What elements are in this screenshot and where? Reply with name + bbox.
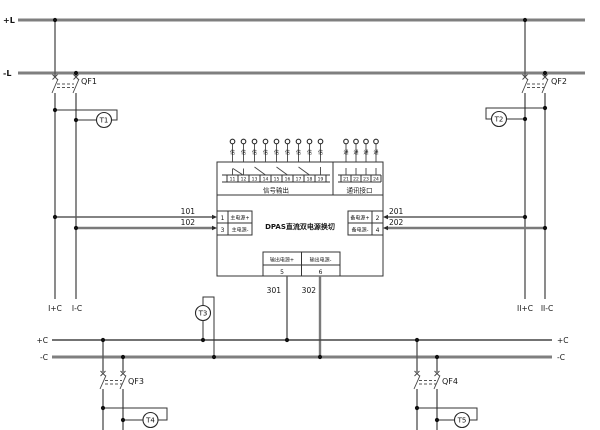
bus-minus-c-label-right: -C — [557, 353, 565, 362]
breaker-qf3-label: QF3 — [128, 377, 144, 386]
terminal-number: 15 — [274, 176, 280, 182]
monitor-t5-label: T5 — [457, 417, 467, 425]
comm-group-label: 通讯接口 — [347, 186, 373, 195]
terminal-number: 16 — [285, 176, 291, 182]
terminal-label: 输出电源- — [310, 257, 332, 264]
breaker-qf3: QF3 — [100, 371, 144, 389]
junction-dots — [53, 18, 547, 422]
bus-plus-l-label: +L — [3, 16, 15, 25]
pin-ring-icon — [344, 139, 349, 144]
comm-pin-stub — [346, 168, 376, 175]
feeder-ii-minus-c-label: II-C — [541, 304, 553, 313]
pin-ring-icon — [318, 139, 323, 144]
feeder-i-plus-c-label: I+C — [48, 304, 62, 313]
output-block: 输出电源+ 输出电源- 5 6 — [263, 252, 340, 276]
connector-pin-label: 通 — [373, 149, 378, 156]
pin-ring-icon — [230, 139, 235, 144]
arrowhead-icon — [383, 226, 388, 231]
comm-terminal-strip: 21 22 23 24 — [338, 168, 381, 182]
terminal-number: 13 — [252, 176, 258, 182]
feeder-1-poles: I+C I-C — [48, 20, 82, 313]
terminal-number: 22 — [353, 176, 359, 182]
arrowhead-icon — [212, 226, 217, 231]
relay-contact-icon — [233, 167, 321, 175]
bus-plus-c-label-left: +C — [36, 336, 48, 345]
terminal-number: 6 — [319, 269, 323, 276]
monitor-t3: T3 — [196, 297, 215, 357]
bus-plus-c-label-right: +C — [557, 336, 569, 345]
terminal-label: 备电源+ — [350, 215, 369, 222]
device-title: DPAS直流双电源换切 — [265, 222, 335, 231]
wire-202-label: 202 — [389, 218, 404, 227]
breaker-qf2-label: QF2 — [551, 77, 567, 86]
monitor-t4: T4 — [103, 408, 167, 428]
backup-input-block: 备电源+ 2 备电源- 4 — [348, 211, 383, 235]
monitor-t1: T1 — [55, 110, 117, 128]
connector-pin-label: 信 — [252, 149, 257, 156]
connector-pin-label: 通 — [343, 149, 348, 156]
connector-pin-label: 信 — [296, 149, 301, 156]
signal-group-label: 信号输出 — [263, 186, 289, 195]
bus-minus-c-label-left: -C — [40, 353, 48, 362]
connector-pin-label: 信 — [263, 149, 268, 156]
output-wires: 301 302 — [267, 276, 320, 357]
terminal-number: 17 — [296, 176, 302, 182]
device-top-connectors: 信 信 信 信 信 信 信 信 信 通 通 通 通 — [230, 139, 379, 162]
connector-pin-label: 信 — [274, 149, 279, 156]
terminal-number: 2 — [376, 215, 380, 222]
breaker-qf1: QF1 — [52, 75, 97, 94]
pin-ring-icon — [307, 139, 312, 144]
terminal-number: 4 — [376, 227, 380, 234]
pin-ring-icon — [354, 139, 359, 144]
connector-pin-label: 信 — [318, 149, 323, 156]
terminal-number: 1 — [221, 215, 225, 222]
terminal-label: 主电源- — [232, 227, 249, 234]
arrowhead-icon — [383, 215, 388, 220]
terminal-number: 11 — [230, 176, 236, 182]
pin-ring-icon — [296, 139, 301, 144]
terminal-label: 备电源- — [352, 227, 369, 234]
pin-ring-icon — [252, 139, 257, 144]
terminal-number: 14 — [263, 176, 269, 182]
monitor-t1-label: T1 — [99, 117, 109, 125]
connector-pin-label: 信 — [241, 149, 246, 156]
wire-301-label: 301 — [267, 286, 282, 295]
arrowhead-icon — [212, 215, 217, 220]
connector-pin-label: 通 — [363, 149, 368, 156]
feeder-ii-plus-c-label: II+C — [517, 304, 533, 313]
connector-pin-label: 信 — [230, 149, 235, 156]
wire-302-label: 302 — [302, 286, 317, 295]
bus-minus-l-label: -L — [3, 69, 11, 78]
wire-201-label: 201 — [389, 207, 404, 216]
connector-pin-label: 通 — [353, 149, 358, 156]
terminal-number: 3 — [221, 227, 225, 234]
monitor-t3-label: T3 — [198, 310, 208, 318]
schematic-page: +L -L I+C I-C QF1 T1 II+C II-C — [0, 0, 600, 430]
terminal-number: 19 — [318, 176, 324, 182]
breaker-qf4: QF4 — [414, 371, 458, 389]
terminal-label: 输出电源+ — [270, 257, 294, 264]
terminal-number: 24 — [373, 176, 379, 182]
terminal-number: 5 — [280, 269, 284, 276]
terminal-number: 12 — [241, 176, 247, 182]
pin-ring-icon — [364, 139, 369, 144]
breaker-qf2: QF2 — [522, 75, 567, 94]
breaker-qf1-label: QF1 — [81, 77, 97, 86]
pin-ring-icon — [285, 139, 290, 144]
pin-ring-icon — [274, 139, 279, 144]
terminal-number: 21 — [343, 176, 349, 182]
feeder-i-minus-c-label: I-C — [72, 304, 82, 313]
control-bus-group: +C -C +C -C — [36, 336, 568, 362]
main-input-block: 1 主电源+ 3 主电源- — [217, 211, 252, 235]
circuit-diagram: +L -L I+C I-C QF1 T1 II+C II-C — [0, 0, 600, 430]
pin-ring-icon — [241, 139, 246, 144]
outgoing-circuit-1: QF3 T4 — [100, 340, 167, 430]
connector-pin-label: 信 — [307, 149, 312, 156]
signal-terminal-strip: 11 12 13 14 15 16 17 18 19 — [222, 167, 330, 182]
pin-ring-icon — [263, 139, 268, 144]
terminal-number: 23 — [363, 176, 369, 182]
dpas-device: 11 12 13 14 15 16 17 18 19 信号输出 21 22 23… — [217, 162, 383, 276]
outgoing-circuit-2: QF4 T5 — [414, 340, 477, 430]
wire-102-label: 102 — [181, 218, 196, 227]
monitor-t5: T5 — [417, 408, 477, 428]
terminal-number: 18 — [307, 176, 313, 182]
pin-ring-icon — [374, 139, 379, 144]
wire-101-label: 101 — [181, 207, 196, 216]
monitor-t2: T2 — [486, 108, 545, 127]
breaker-qf4-label: QF4 — [442, 377, 458, 386]
monitor-t2-label: T2 — [494, 116, 504, 124]
top-bus-group: +L -L — [3, 16, 585, 78]
monitor-t4-label: T4 — [145, 417, 155, 425]
connector-pin-label: 信 — [285, 149, 290, 156]
feeder-2-poles: II+C II-C — [517, 20, 553, 313]
terminal-label: 主电源+ — [230, 215, 249, 222]
